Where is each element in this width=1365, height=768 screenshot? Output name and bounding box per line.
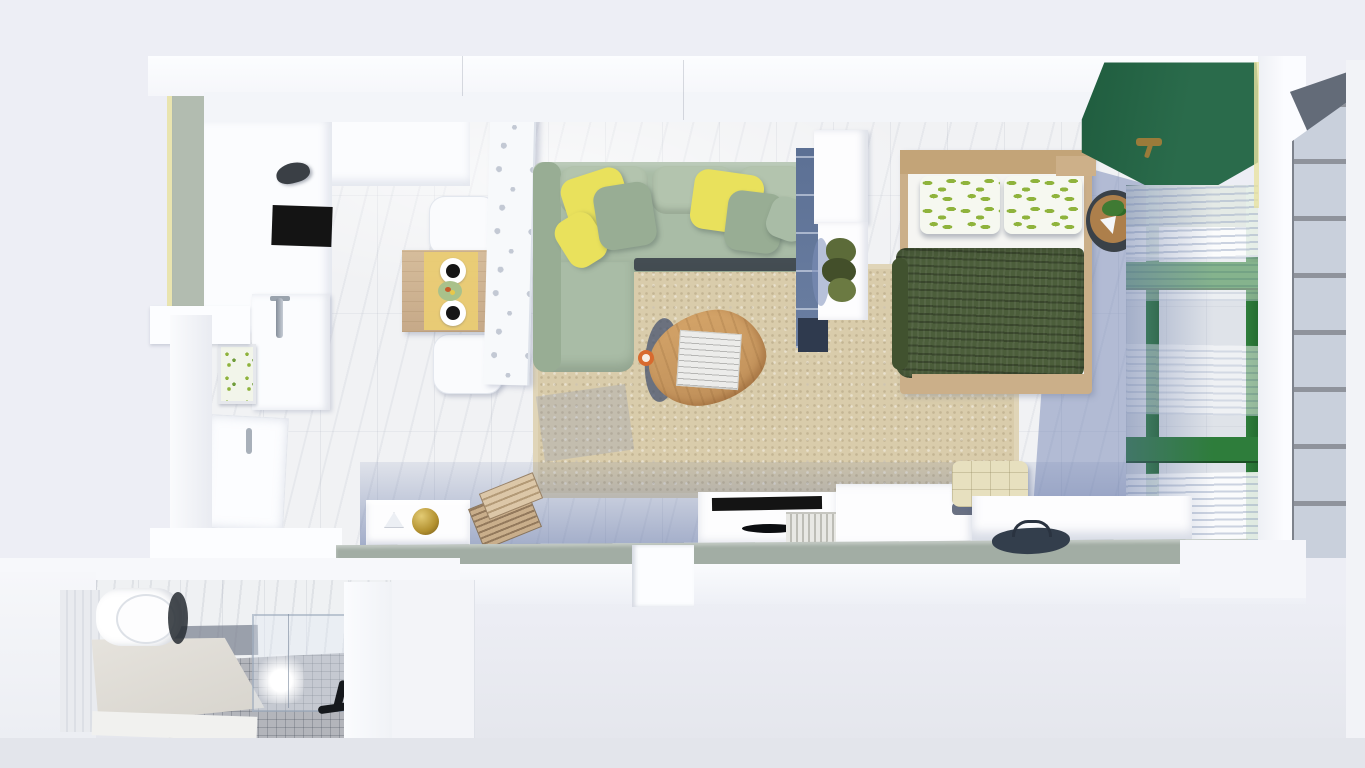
- bath-platform-face: [92, 711, 258, 741]
- ground-strip: [0, 738, 1365, 768]
- botanical-art-frame: [218, 344, 256, 404]
- door-handle: [246, 428, 252, 454]
- bookshelf-base: [798, 318, 828, 352]
- coffee-cup: [638, 350, 654, 366]
- bottom-doorway: [632, 545, 694, 607]
- open-book: [676, 330, 742, 390]
- cooktop: [271, 205, 332, 247]
- cup-inner: [642, 354, 650, 362]
- fruit: [450, 290, 455, 295]
- shower-glass-seam: [288, 614, 289, 708]
- bed-footboard: [912, 374, 1088, 392]
- floor-plan-render: [0, 0, 1365, 768]
- exterior-facade-window: [1292, 100, 1350, 558]
- bookshelf-top: [814, 130, 868, 224]
- fruit-bowl: [438, 281, 462, 301]
- toilet-seat: [116, 594, 176, 644]
- leaf-print-pillow: [1004, 176, 1082, 234]
- perforated-room-divider: [483, 94, 537, 385]
- tv: [712, 496, 822, 511]
- entry-door: [201, 414, 289, 532]
- leaf-print-pillow: [920, 176, 1000, 234]
- faucet: [276, 298, 283, 338]
- wall-seam: [683, 60, 684, 120]
- potted-plant: [828, 278, 856, 302]
- plate-center: [446, 264, 460, 278]
- bedroom-window-zone: [1126, 185, 1272, 547]
- folding-wood-chair: [474, 486, 540, 550]
- shower-light-glow: [258, 652, 304, 704]
- green-blanket: [896, 248, 1084, 378]
- floor-shadow-dining: [536, 384, 634, 462]
- curtain-shadow: [1126, 185, 1272, 547]
- blanket-drape: [892, 258, 908, 370]
- sage-pillow: [591, 180, 658, 252]
- sink-cabinet: [252, 294, 330, 410]
- sunlit-edge-right: [1254, 62, 1259, 208]
- plate-center: [446, 306, 460, 320]
- bag-handle: [1012, 520, 1052, 537]
- headboard-shelf: [1056, 156, 1096, 176]
- plate: [440, 300, 466, 326]
- sofa-seat-shadow: [634, 258, 808, 271]
- plate: [440, 258, 466, 284]
- sofa-armrest: [533, 162, 561, 372]
- bottom-right-wall: [1180, 540, 1306, 598]
- wall-seam: [462, 56, 463, 96]
- toilet-shadow: [168, 592, 188, 644]
- top-wall-inner-lip: [204, 92, 1156, 122]
- gold-ornament: [412, 508, 439, 535]
- left-wall-lower: [170, 315, 212, 547]
- facade-wall: [1346, 60, 1365, 760]
